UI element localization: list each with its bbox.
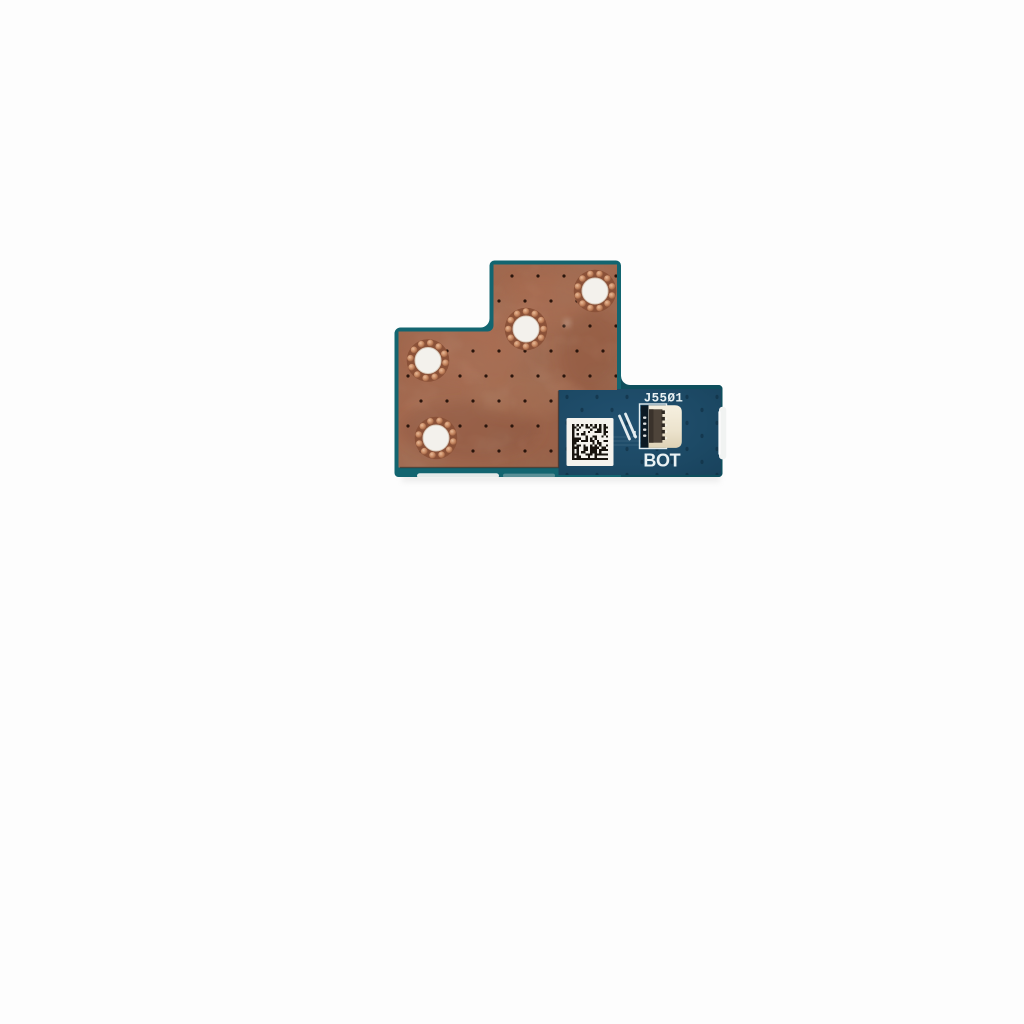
svg-text:1: 1 — [633, 431, 638, 440]
svg-text:J55Ø1: J55Ø1 — [644, 392, 684, 406]
svg-text:BOT: BOT — [643, 450, 680, 470]
